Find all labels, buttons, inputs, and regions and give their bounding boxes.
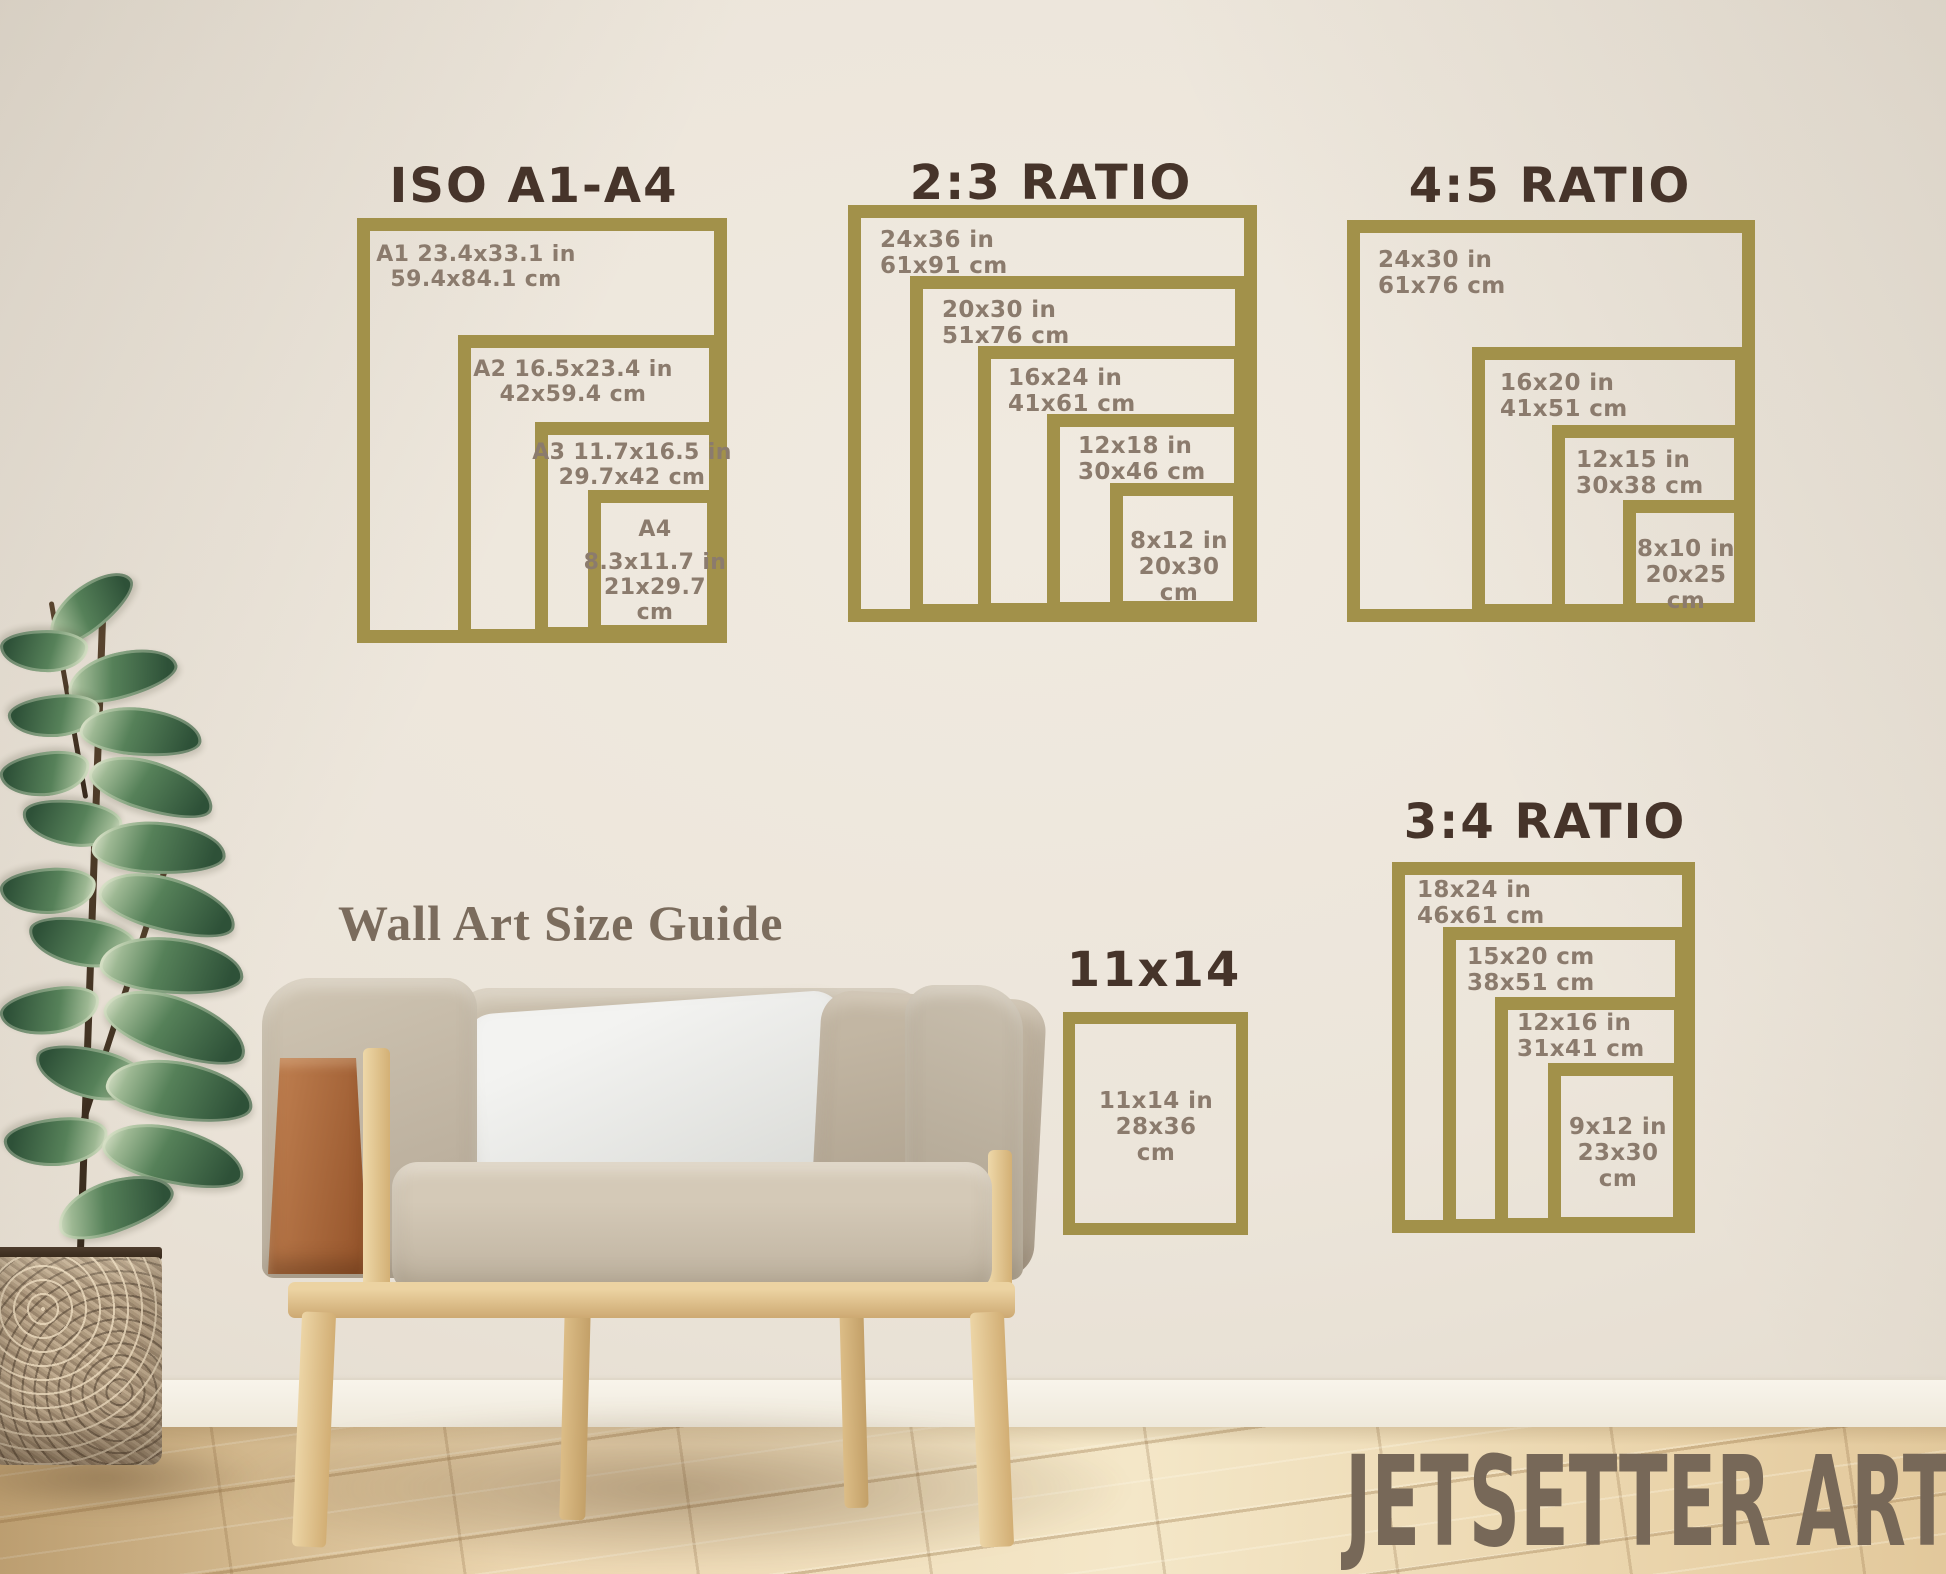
section-title-iso: ISO A1-A4 bbox=[390, 162, 679, 210]
chair-shadow bbox=[225, 1408, 1125, 1568]
label-12x15: 12x15 in 30x38 cm bbox=[1576, 447, 1704, 499]
label-16x24: 16x24 in 41x61 cm bbox=[1008, 365, 1136, 417]
label-8x12: 8x12 in 20x30 cm bbox=[1130, 528, 1228, 607]
label-9x12: 9x12 in 23x30 cm bbox=[1569, 1114, 1667, 1193]
label-20x30: 20x30 in 51x76 cm bbox=[942, 297, 1070, 349]
label-24x30: 24x30 in 61x76 cm bbox=[1378, 247, 1506, 299]
leaf bbox=[0, 628, 89, 673]
wall-art-size-guide-scene: ISO A1-A4 A1 23.4x33.1 in 59.4x84.1 cm A… bbox=[0, 0, 1946, 1574]
label-a1: A1 23.4x33.1 in 59.4x84.1 cm bbox=[376, 242, 576, 292]
leaf bbox=[0, 866, 97, 915]
label-12x16: 12x16 in 31x41 cm bbox=[1517, 1010, 1645, 1062]
label-24x36: 24x36 in 61x91 cm bbox=[880, 227, 1008, 279]
section-title-3-4: 3:4 RATIO bbox=[1404, 798, 1687, 846]
caption-wall-art-size-guide: Wall Art Size Guide bbox=[338, 894, 783, 952]
label-15x20: 15x20 cm 38x51 cm bbox=[1467, 944, 1595, 996]
section-title-4-5: 4:5 RATIO bbox=[1409, 162, 1692, 210]
label-12x18: 12x18 in 30x46 cm bbox=[1078, 433, 1206, 485]
label-18x24: 18x24 in 46x61 cm bbox=[1417, 877, 1545, 929]
label-a4: A4 8.3x11.7 in 21x29.7 cm bbox=[584, 517, 727, 625]
woven-basket-planter bbox=[0, 1257, 162, 1465]
section-title-11x14: 11x14 bbox=[1067, 946, 1242, 994]
label-11x14: 11x14 in 28x36 cm bbox=[1099, 1088, 1213, 1167]
baseboard bbox=[0, 1378, 1946, 1429]
label-8x10: 8x10 in 20x25 cm bbox=[1637, 536, 1735, 615]
label-a2: A2 16.5x23.4 in 42x59.4 cm bbox=[473, 357, 673, 407]
section-title-2-3: 2:3 RATIO bbox=[910, 159, 1193, 207]
label-a3: A3 11.7x16.5 in 29.7x42 cm bbox=[532, 440, 732, 490]
leaf bbox=[0, 747, 92, 800]
brand-watermark: JETSETTER ARTS bbox=[1345, 1440, 1946, 1565]
label-16x20: 16x20 in 41x51 cm bbox=[1500, 370, 1628, 422]
leaf bbox=[2, 1114, 109, 1169]
